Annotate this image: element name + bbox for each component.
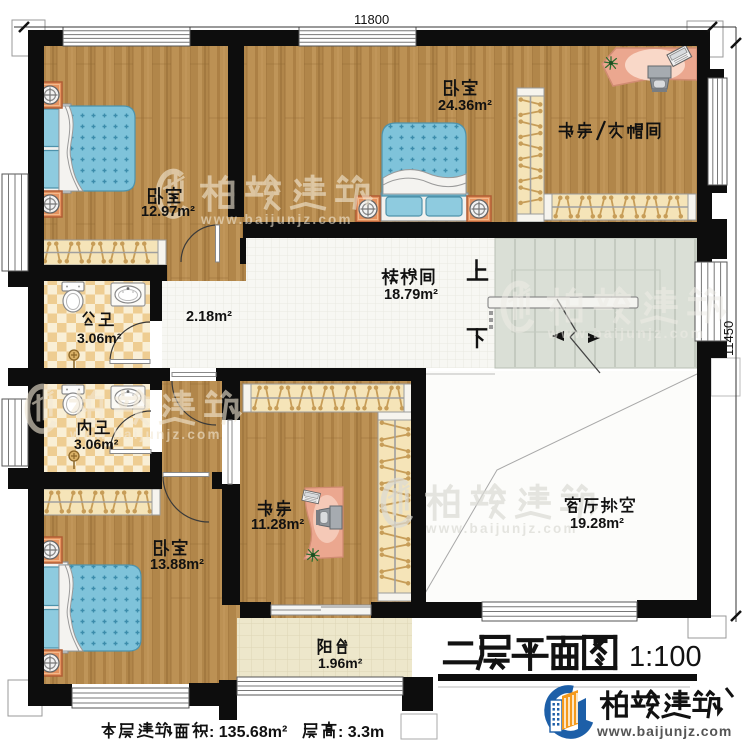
svg-text:12.97m²: 12.97m² <box>141 204 195 220</box>
svg-text:11800: 11800 <box>354 12 389 27</box>
svg-text:www.baijunjz.com: www.baijunjz.com <box>200 212 353 227</box>
svg-text:24.36m²: 24.36m² <box>438 98 492 114</box>
svg-text:www.baijunjz.com: www.baijunjz.com <box>547 325 706 341</box>
svg-text:1:100: 1:100 <box>629 641 702 673</box>
svg-text:www.baijunjz.com: www.baijunjz.com <box>596 723 732 739</box>
svg-text:18.79m²: 18.79m² <box>384 287 438 303</box>
svg-text:: 135.68m²: : 135.68m² <box>209 724 287 741</box>
svg-text:1.96m²: 1.96m² <box>318 655 363 671</box>
svg-text:11.28m²: 11.28m² <box>251 517 304 533</box>
svg-text:3.06m²: 3.06m² <box>77 330 122 346</box>
svg-text:19.28m²: 19.28m² <box>570 516 624 532</box>
svg-text:13.88m²: 13.88m² <box>150 557 204 573</box>
svg-text:3.06m²: 3.06m² <box>74 436 119 452</box>
svg-text:11450: 11450 <box>721 321 736 356</box>
svg-text:www.baijunjz.com: www.baijunjz.com <box>425 521 578 536</box>
svg-text:: 3.3m: : 3.3m <box>338 724 384 741</box>
svg-text:2.18m²: 2.18m² <box>186 309 232 325</box>
